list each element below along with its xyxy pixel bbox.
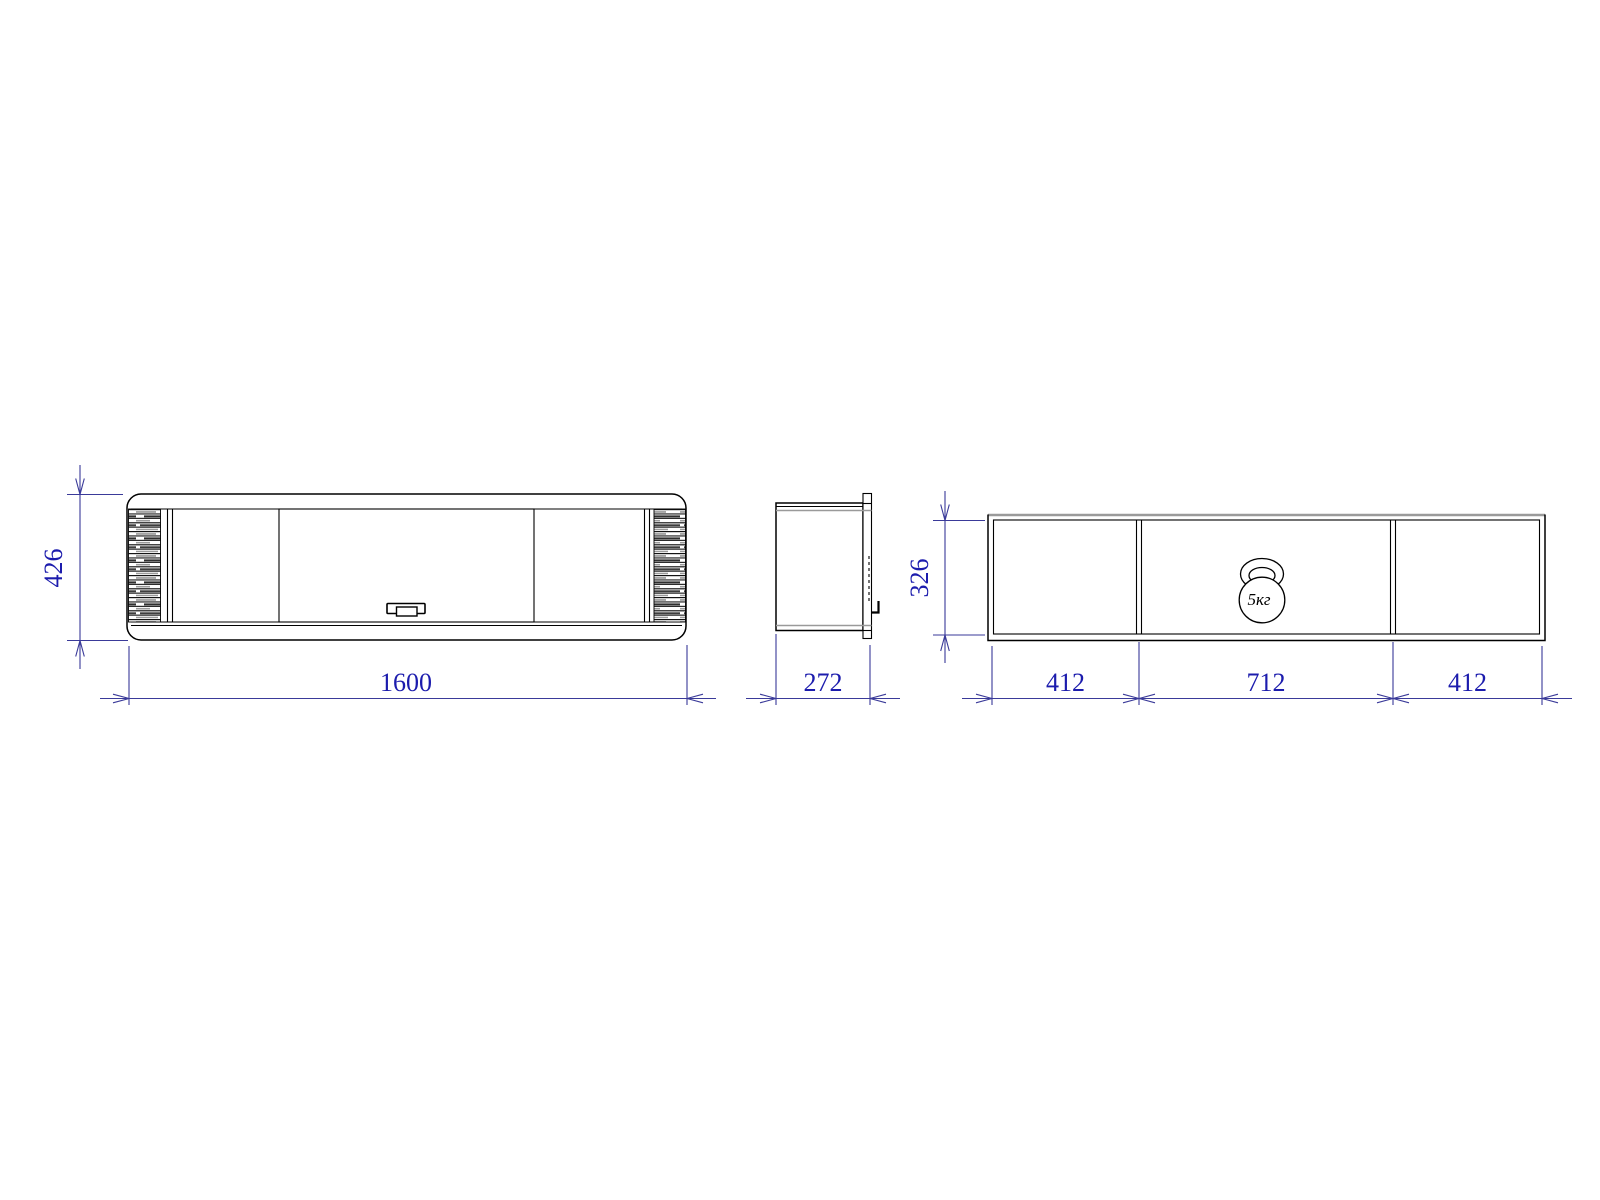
dim-text-section-3: 412: [1448, 668, 1487, 697]
side-view-dimensions: 272: [746, 634, 900, 705]
right-louver-panel: [654, 509, 686, 622]
wall-hook-bracket: [872, 601, 879, 613]
dim-text-width: 1600: [380, 668, 432, 697]
side-view: [776, 494, 879, 639]
dim-text-section-2: 712: [1247, 668, 1286, 697]
dim-text-depth: 272: [804, 668, 843, 697]
dim-text-height: 426: [39, 549, 68, 588]
weight-label: 5кг: [1247, 590, 1270, 609]
left-louver-panel: [129, 509, 161, 622]
weight-5kg-icon: 5кг: [1239, 559, 1285, 623]
drawing-canvas: 426 1600 272: [0, 0, 1600, 1200]
dim-text-interior-height: 326: [905, 559, 934, 598]
interior-view-dimensions: 326 412 712 412: [905, 491, 1572, 705]
door-handle-icon: [387, 604, 425, 617]
side-view-body: [776, 503, 863, 631]
interior-view: 5кг: [988, 515, 1545, 641]
dim-text-section-1: 412: [1046, 668, 1085, 697]
back-rail: [863, 494, 872, 639]
furniture-technical-drawing: 426 1600 272: [0, 0, 1600, 1200]
front-view: [127, 494, 686, 640]
